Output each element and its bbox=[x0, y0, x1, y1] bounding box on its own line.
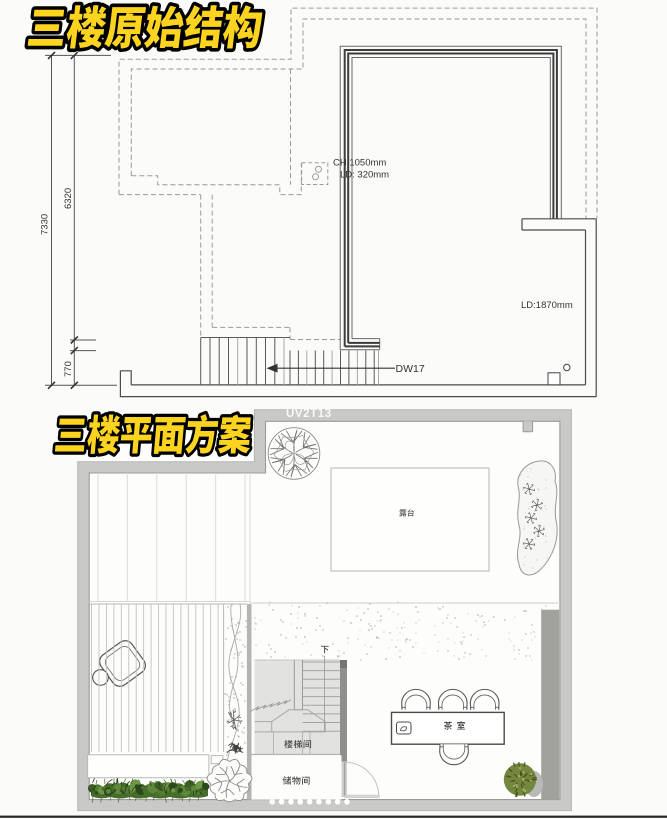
svg-text:LD: 320mm: LD: 320mm bbox=[340, 170, 389, 181]
svg-text:CH:1050mm: CH:1050mm bbox=[333, 158, 386, 169]
svg-text:UV2T13: UV2T13 bbox=[286, 408, 332, 420]
svg-text:7330: 7330 bbox=[40, 214, 51, 235]
svg-text:LD:1870mm: LD:1870mm bbox=[521, 300, 573, 311]
svg-text:770: 770 bbox=[63, 361, 74, 377]
svg-text:DW17: DW17 bbox=[396, 363, 425, 375]
svg-text:6320: 6320 bbox=[63, 188, 74, 209]
